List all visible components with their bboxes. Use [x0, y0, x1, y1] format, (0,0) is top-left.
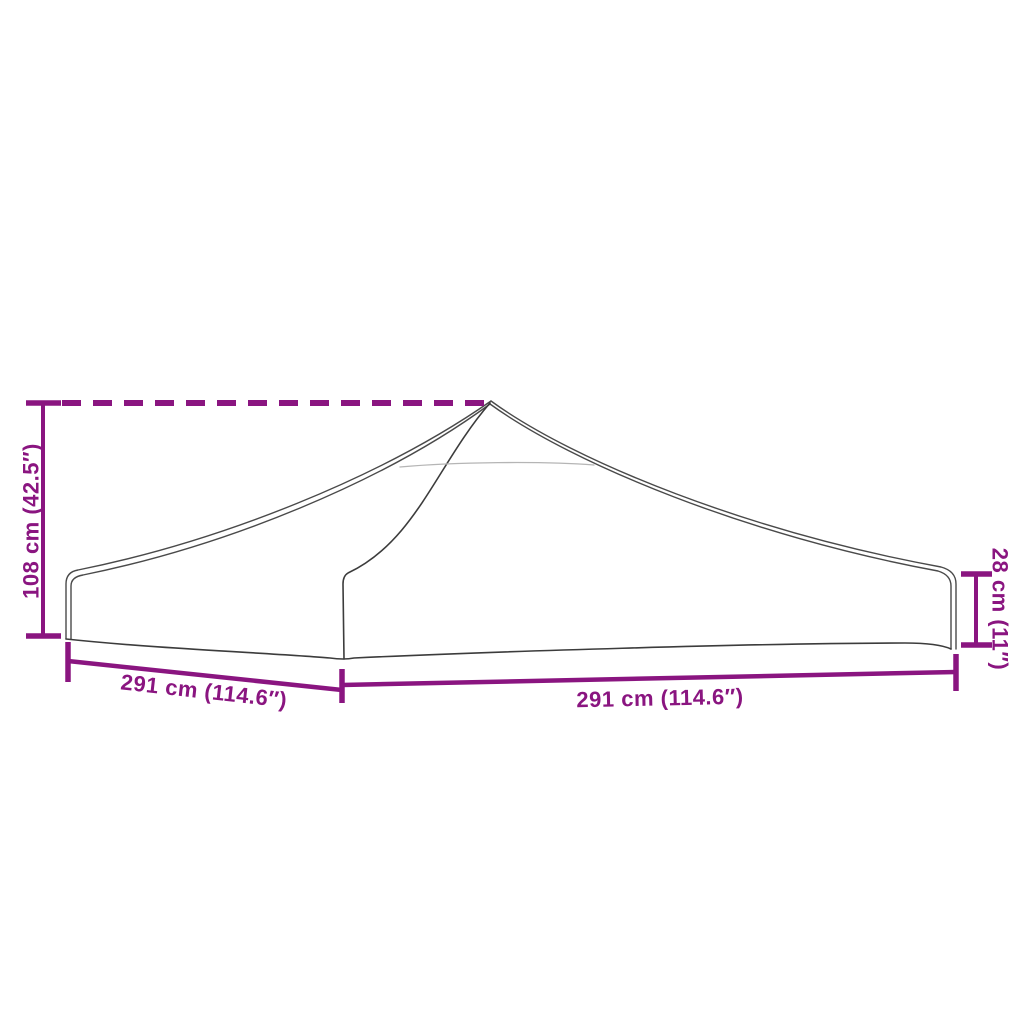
canopy-bottom-hem — [66, 639, 951, 659]
canopy-diagram-svg: 108 cm (42.5″) 291 cm (114.6″) 291 cm (1… — [0, 0, 1024, 1024]
dimension-diagram: 108 cm (42.5″) 291 cm (114.6″) 291 cm (1… — [0, 0, 1024, 1024]
dimension-width-left: 291 cm (114.6″) — [68, 642, 342, 713]
canopy-back-eave — [400, 463, 594, 467]
valance-height-label: 28 cm (11″) — [988, 548, 1013, 670]
dimension-width-right: 291 cm (114.6″) — [342, 654, 956, 712]
canopy-left-ridge-inner — [71, 404, 490, 639]
dimension-valance-height: 28 cm (11″) — [961, 548, 1013, 670]
width-right-label: 291 cm (114.6″) — [576, 684, 744, 712]
canopy-outline — [66, 401, 956, 659]
height-total-label: 108 cm (42.5″) — [19, 443, 44, 599]
canopy-left-ridge-outer — [66, 401, 491, 639]
canopy-front-seam — [343, 403, 490, 659]
canopy-right-ridge-outer — [491, 401, 956, 649]
width-right-line — [342, 672, 956, 685]
canopy-right-ridge-inner — [490, 404, 951, 649]
